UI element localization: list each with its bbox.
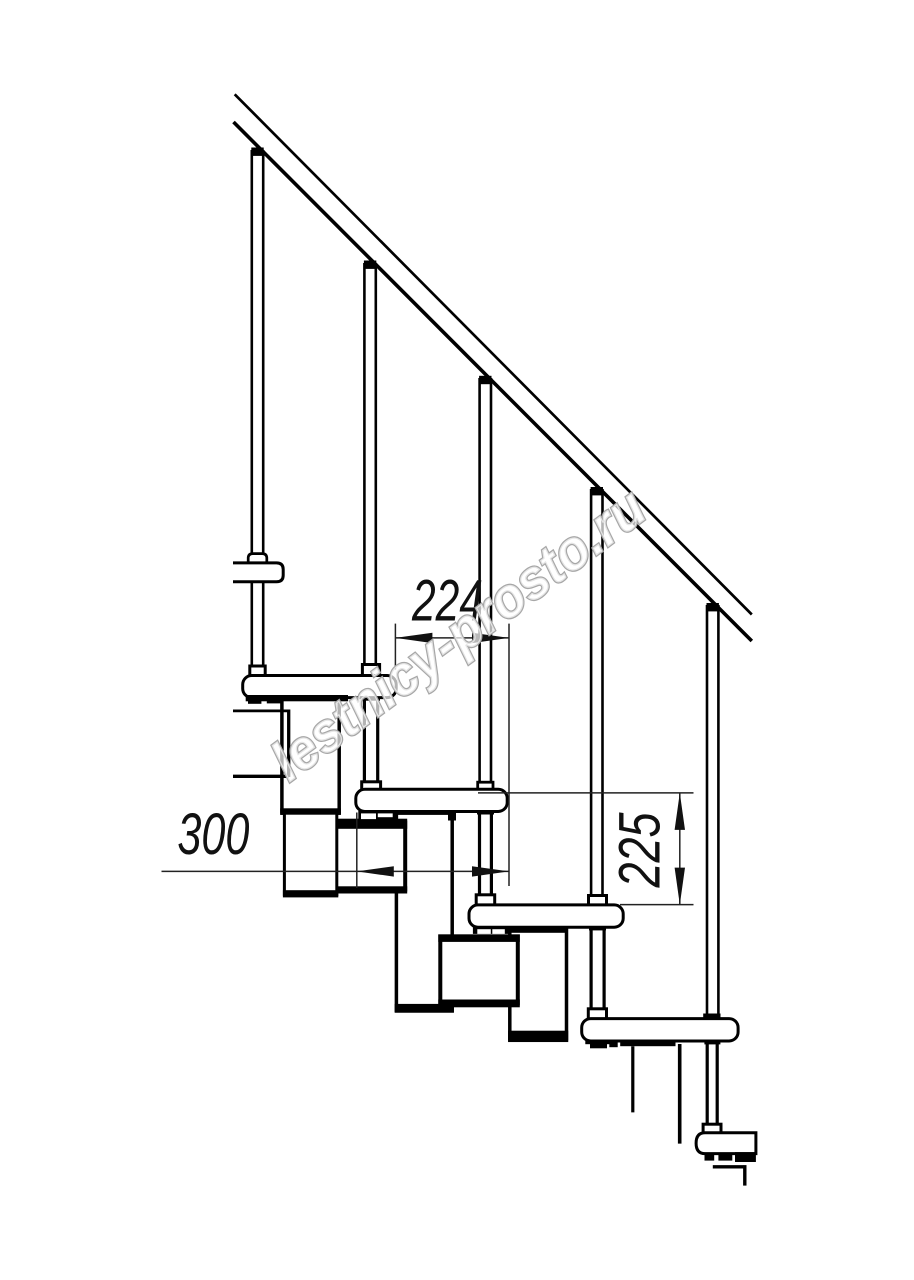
svg-text:225: 225 <box>608 812 673 888</box>
svg-text:300: 300 <box>177 802 249 867</box>
